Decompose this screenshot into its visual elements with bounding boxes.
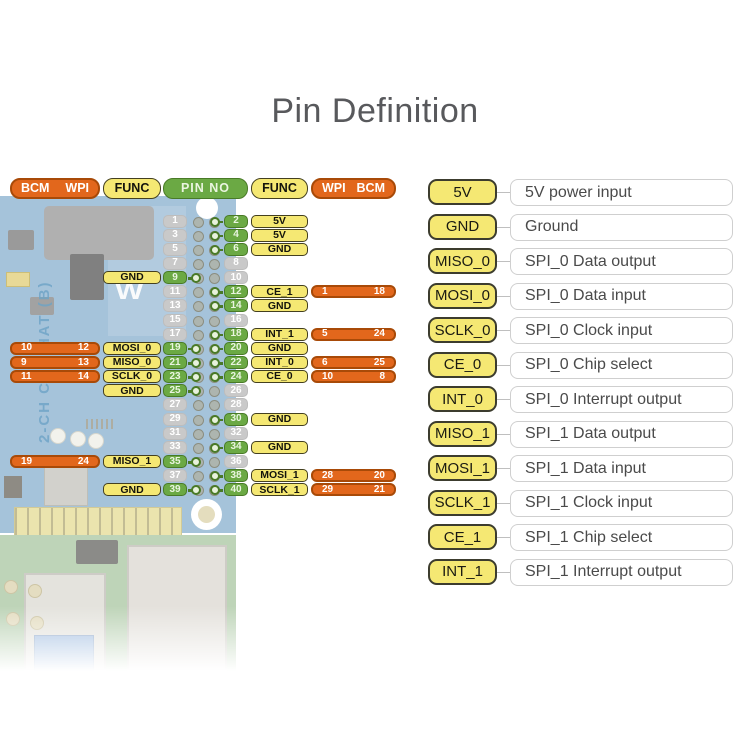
pin-number-box: 7 bbox=[163, 257, 187, 270]
header-pin-no: PIN NO bbox=[163, 178, 248, 199]
pin-number-box: 37 bbox=[163, 469, 187, 482]
legend-pin-pill: SCLK_0 bbox=[428, 317, 497, 343]
pin-number: 5 bbox=[172, 244, 178, 254]
pin-number-box: 11 bbox=[163, 285, 187, 298]
header-pin-dot bbox=[193, 415, 204, 426]
header-pin-dot bbox=[193, 471, 204, 482]
pin-number-box: 34 bbox=[224, 441, 248, 454]
header-wpi-right-label: WPI bbox=[322, 182, 346, 195]
func-text: GND bbox=[120, 485, 143, 496]
pin-connector-dot bbox=[210, 344, 220, 354]
header-bcm-left-label: BCM bbox=[21, 182, 49, 195]
legend-connector-line bbox=[497, 468, 510, 469]
header-pin-dot bbox=[193, 301, 204, 312]
wpi-value: 5 bbox=[322, 329, 328, 339]
legend-connector-line bbox=[497, 261, 510, 262]
pin-number-box: 35 bbox=[163, 455, 187, 468]
pin-number: 34 bbox=[230, 442, 241, 452]
pin-number: 18 bbox=[230, 329, 241, 339]
pin-number: 2 bbox=[233, 216, 239, 226]
func-label-right: GND bbox=[251, 413, 308, 426]
legend-desc-text: SPI_1 Data input bbox=[525, 460, 646, 478]
header-pin-dot bbox=[193, 245, 204, 256]
legend-desc-box: SPI_0 Data input bbox=[510, 283, 733, 310]
wpi-bcm-right-values: 2921 bbox=[311, 483, 396, 496]
pin-number: 4 bbox=[233, 230, 239, 240]
pin-number-box: 17 bbox=[163, 328, 187, 341]
header-pin-dot bbox=[193, 400, 204, 411]
pin-number-box: 6 bbox=[224, 243, 248, 256]
pin-number: 36 bbox=[230, 457, 241, 467]
legend-desc-text: SPI_1 Clock input bbox=[525, 494, 652, 512]
bcm-wpi-left-values: 1012 bbox=[10, 342, 100, 355]
pin-connector-dot bbox=[210, 415, 220, 425]
func-label-left: MISO_0 bbox=[103, 356, 161, 369]
func-text: GND bbox=[268, 414, 291, 425]
wpi-bcm-right-values: 625 bbox=[311, 356, 396, 369]
header-wpi-bcm-right: WPI BCM bbox=[311, 178, 396, 199]
func-label-right: MOSI_1 bbox=[251, 469, 308, 482]
legend-pin-pill: CE_0 bbox=[428, 352, 497, 378]
pin-number-box: 38 bbox=[224, 469, 248, 482]
pin-number-box: 9 bbox=[163, 271, 187, 284]
func-text: MOSI_0 bbox=[113, 343, 152, 354]
func-text: SCLK_1 bbox=[259, 485, 299, 496]
legend-desc-box: SPI_1 Clock input bbox=[510, 490, 733, 517]
func-label-right: CE_0 bbox=[251, 370, 308, 383]
legend-pin-pill: CE_1 bbox=[428, 524, 497, 550]
bcm-value: 20 bbox=[374, 471, 385, 481]
pin-number: 19 bbox=[169, 343, 180, 353]
pin-number: 1 bbox=[172, 216, 178, 226]
wpi-bcm-right-values: 2820 bbox=[311, 469, 396, 482]
pin-number-box: 30 bbox=[224, 413, 248, 426]
pin-number-box: 1 bbox=[163, 215, 187, 228]
pin-number: 10 bbox=[230, 273, 241, 283]
legend-desc-box: SPI_1 Interrupt output bbox=[510, 559, 733, 586]
header-pin-dot bbox=[193, 429, 204, 440]
func-label-right: 5V bbox=[251, 215, 308, 228]
bcm-value: 11 bbox=[21, 372, 32, 382]
func-label-right: SCLK_1 bbox=[251, 483, 308, 496]
legend-pin-name: SCLK_1 bbox=[435, 494, 491, 511]
legend-pin-name: INT_1 bbox=[442, 563, 483, 580]
pin-connector-dot bbox=[210, 330, 220, 340]
pin-number: 33 bbox=[169, 442, 180, 452]
pin-number: 25 bbox=[169, 386, 180, 396]
header-bcm-wpi-left: BCM WPI bbox=[10, 178, 100, 199]
pin-connector-dot bbox=[210, 443, 220, 453]
legend-pin-pill: MISO_0 bbox=[428, 248, 497, 274]
pin-number: 31 bbox=[169, 428, 180, 438]
pin-number-box: 8 bbox=[224, 257, 248, 270]
header-pin-dot bbox=[193, 287, 204, 298]
pin-number-box: 14 bbox=[224, 299, 248, 312]
bcm-value: 18 bbox=[374, 287, 385, 297]
pin-number-box: 20 bbox=[224, 342, 248, 355]
legend-connector-line bbox=[497, 365, 510, 366]
func-label-right: GND bbox=[251, 441, 308, 454]
func-text: GND bbox=[120, 272, 143, 283]
header-pin-dot bbox=[209, 386, 220, 397]
header-pin-dot bbox=[193, 217, 204, 228]
pin-number-box: 26 bbox=[224, 384, 248, 397]
func-text: 5V bbox=[273, 216, 286, 227]
legend-pin-name: CE_1 bbox=[444, 529, 482, 546]
pin-number-box: 29 bbox=[163, 413, 187, 426]
pin-number-box: 18 bbox=[224, 328, 248, 341]
header-pin-dot bbox=[209, 457, 220, 468]
legend-pin-name: 5V bbox=[453, 184, 471, 201]
legend-pin-pill: MOSI_1 bbox=[428, 455, 497, 481]
func-text: GND bbox=[120, 386, 143, 397]
pin-number-box: 28 bbox=[224, 398, 248, 411]
pin-number: 26 bbox=[230, 386, 241, 396]
legend-desc-box: SPI_0 Data output bbox=[510, 248, 733, 275]
legend-desc-box: SPI_1 Chip select bbox=[510, 524, 733, 551]
pin-number: 8 bbox=[233, 258, 239, 268]
func-text: GND bbox=[268, 343, 291, 354]
wpi-bcm-right-values: 118 bbox=[311, 285, 396, 298]
func-text: MISO_0 bbox=[113, 357, 152, 368]
legend-connector-line bbox=[497, 537, 510, 538]
pin-number: 6 bbox=[233, 244, 239, 254]
legend-pin-name: INT_0 bbox=[442, 391, 483, 408]
func-text: MISO_1 bbox=[113, 456, 152, 467]
func-text: SCLK_0 bbox=[112, 371, 152, 382]
pin-number-box: 2 bbox=[224, 215, 248, 228]
wpi-value: 10 bbox=[322, 372, 333, 382]
func-label-right: 5V bbox=[251, 229, 308, 242]
func-label-left: SCLK_0 bbox=[103, 370, 161, 383]
func-label-left: MISO_1 bbox=[103, 455, 161, 468]
pin-number-box: 32 bbox=[224, 427, 248, 440]
header-pin-dot bbox=[209, 259, 220, 270]
header-pin-dot bbox=[209, 273, 220, 284]
legend-desc-box: SPI_0 Interrupt output bbox=[510, 386, 733, 413]
header-pin-dot bbox=[193, 316, 204, 327]
pin-number-box: 27 bbox=[163, 398, 187, 411]
bcm-value: 21 bbox=[374, 485, 385, 495]
pin-number-box: 31 bbox=[163, 427, 187, 440]
pin-number-box: 5 bbox=[163, 243, 187, 256]
pin-number-box: 25 bbox=[163, 384, 187, 397]
header-pin-dot bbox=[209, 429, 220, 440]
pin-connector-dot bbox=[210, 358, 220, 368]
header-pin-dot bbox=[209, 316, 220, 327]
wpi-bcm-right-values: 108 bbox=[311, 370, 396, 383]
pin-connector-dot bbox=[191, 457, 201, 467]
pin-number: 40 bbox=[230, 485, 241, 495]
func-label-left: GND bbox=[103, 384, 161, 397]
func-label-right: CE_1 bbox=[251, 285, 308, 298]
pin-number: 11 bbox=[170, 287, 181, 297]
wpi-bcm-right-values: 524 bbox=[311, 328, 396, 341]
pin-number: 32 bbox=[230, 428, 241, 438]
header-func-right: FUNC bbox=[251, 178, 308, 199]
pin-number-box: 12 bbox=[224, 285, 248, 298]
bcm-value: 25 bbox=[374, 358, 385, 368]
pin-connector-dot bbox=[191, 358, 201, 368]
legend-desc-text: SPI_0 Data input bbox=[525, 287, 646, 305]
pin-number: 12 bbox=[230, 287, 241, 297]
pin-number: 37 bbox=[169, 471, 180, 481]
bcm-value: 9 bbox=[21, 358, 27, 368]
photo-bottom-fade bbox=[0, 606, 240, 678]
legend-desc-text: SPI_0 Interrupt output bbox=[525, 391, 682, 409]
pin-number-box: 15 bbox=[163, 314, 187, 327]
pin-number-box: 36 bbox=[224, 455, 248, 468]
legend-desc-text: SPI_0 Clock input bbox=[525, 322, 652, 340]
func-label-right: GND bbox=[251, 342, 308, 355]
pin-number-box: 39 bbox=[163, 483, 187, 496]
wpi-value: 13 bbox=[78, 358, 89, 368]
legend-desc-text: SPI_0 Chip select bbox=[525, 356, 652, 374]
legend-pin-name: MISO_1 bbox=[435, 425, 490, 442]
pin-number-box: 4 bbox=[224, 229, 248, 242]
bcm-wpi-left-values: 1924 bbox=[10, 455, 100, 468]
pin-number-box: 16 bbox=[224, 314, 248, 327]
header-pin-dot bbox=[193, 330, 204, 341]
legend-desc-text: SPI_1 Data output bbox=[525, 425, 656, 443]
legend-pin-pill: INT_1 bbox=[428, 559, 497, 585]
func-text: INT_1 bbox=[265, 329, 294, 340]
pin-number-box: 33 bbox=[163, 441, 187, 454]
legend-pin-name: MISO_0 bbox=[435, 253, 490, 270]
pin-connector-dot bbox=[210, 245, 220, 255]
func-label-right: INT_0 bbox=[251, 356, 308, 369]
pin-number: 3 bbox=[172, 230, 178, 240]
pin-number: 38 bbox=[230, 471, 241, 481]
pin-number: 15 bbox=[169, 315, 180, 325]
pin-number-box: 10 bbox=[224, 271, 248, 284]
wpi-value: 1 bbox=[322, 287, 328, 297]
pin-connector-dot bbox=[210, 231, 220, 241]
pin-number-box: 3 bbox=[163, 229, 187, 242]
wpi-value: 29 bbox=[322, 485, 333, 495]
pin-number: 21 bbox=[169, 358, 180, 368]
legend-connector-line bbox=[497, 572, 510, 573]
pin-number: 28 bbox=[230, 400, 241, 410]
legend-pin-pill: MOSI_0 bbox=[428, 283, 497, 309]
legend-pin-pill: MISO_1 bbox=[428, 421, 497, 447]
func-text: GND bbox=[268, 244, 291, 255]
header-pin-dot bbox=[209, 400, 220, 411]
pin-number: 13 bbox=[169, 301, 180, 311]
header-pin-dot bbox=[193, 443, 204, 454]
pin-number-box: 21 bbox=[163, 356, 187, 369]
header-pin-dot bbox=[193, 259, 204, 270]
page-title: Pin Definition bbox=[0, 92, 750, 131]
bcm-value: 8 bbox=[379, 372, 385, 382]
func-text: MOSI_1 bbox=[260, 470, 299, 481]
pin-number-box: 13 bbox=[163, 299, 187, 312]
wpi-value: 6 bbox=[322, 358, 328, 368]
func-text: CE_0 bbox=[266, 371, 292, 382]
legend-desc-box: SPI_0 Clock input bbox=[510, 317, 733, 344]
bcm-value: 24 bbox=[374, 329, 385, 339]
pin-number: 20 bbox=[230, 343, 241, 353]
legend-connector-line bbox=[497, 227, 510, 228]
header-wpi-left-label: WPI bbox=[65, 182, 89, 195]
pin-number: 7 bbox=[172, 258, 178, 268]
pin-number: 39 bbox=[169, 485, 180, 495]
bcm-value: 10 bbox=[21, 343, 32, 353]
legend-desc-box: Ground bbox=[510, 214, 733, 241]
func-label-left: GND bbox=[103, 483, 161, 496]
func-text: INT_0 bbox=[265, 357, 294, 368]
legend-pin-name: GND bbox=[446, 218, 479, 235]
pin-connector-dot bbox=[210, 217, 220, 227]
pin-number: 9 bbox=[172, 273, 178, 283]
legend-pin-name: MOSI_1 bbox=[435, 460, 490, 477]
func-label-left: GND bbox=[103, 271, 161, 284]
func-text: GND bbox=[268, 301, 291, 312]
pin-number: 16 bbox=[230, 315, 241, 325]
legend-desc-text: SPI_1 Chip select bbox=[525, 529, 652, 547]
legend-connector-line bbox=[497, 192, 510, 193]
legend-desc-box: SPI_1 Data output bbox=[510, 421, 733, 448]
pin-number: 14 bbox=[230, 301, 241, 311]
pin-number: 30 bbox=[230, 414, 241, 424]
func-text: CE_1 bbox=[266, 287, 292, 298]
legend-pin-pill: INT_0 bbox=[428, 386, 497, 412]
legend-pin-pill: GND bbox=[428, 214, 497, 240]
legend-desc-text: SPI_1 Interrupt output bbox=[525, 563, 682, 581]
pin-number-box: 24 bbox=[224, 370, 248, 383]
legend-pin-pill: 5V bbox=[428, 179, 497, 205]
pin-number-box: 40 bbox=[224, 483, 248, 496]
photo-wash-overlay bbox=[0, 196, 240, 676]
header-bcm-right-label: BCM bbox=[357, 182, 385, 195]
wpi-value: 24 bbox=[78, 457, 89, 467]
pin-definition-diagram: Pin Definition 2-CH CAN HAT (B) W bbox=[0, 0, 750, 750]
legend-connector-line bbox=[497, 399, 510, 400]
func-text: 5V bbox=[273, 230, 286, 241]
func-text: GND bbox=[268, 442, 291, 453]
pin-number-box: 22 bbox=[224, 356, 248, 369]
wpi-value: 14 bbox=[78, 372, 89, 382]
pin-number-box: 23 bbox=[163, 370, 187, 383]
legend-pin-name: MOSI_0 bbox=[435, 287, 490, 304]
bcm-wpi-left-values: 913 bbox=[10, 356, 100, 369]
func-label-left: MOSI_0 bbox=[103, 342, 161, 355]
pin-number: 29 bbox=[169, 414, 180, 424]
pin-connector-dot bbox=[191, 344, 201, 354]
pin-number: 22 bbox=[230, 358, 241, 368]
legend-desc-text: SPI_0 Data output bbox=[525, 253, 656, 271]
func-label-right: GND bbox=[251, 299, 308, 312]
legend-desc-text: 5V power input bbox=[525, 184, 632, 202]
header-func-left: FUNC bbox=[103, 178, 161, 199]
pin-number: 23 bbox=[169, 372, 180, 382]
legend-connector-line bbox=[497, 434, 510, 435]
legend-connector-line bbox=[497, 296, 510, 297]
wpi-value: 12 bbox=[78, 343, 89, 353]
pin-number: 35 bbox=[169, 457, 180, 467]
func-label-right: GND bbox=[251, 243, 308, 256]
legend-desc-box: SPI_0 Chip select bbox=[510, 352, 733, 379]
pin-number: 27 bbox=[169, 400, 180, 410]
legend-connector-line bbox=[497, 503, 510, 504]
wpi-value: 28 bbox=[322, 471, 333, 481]
legend-connector-line bbox=[497, 330, 510, 331]
header-pin-dot bbox=[193, 231, 204, 242]
bcm-value: 19 bbox=[21, 457, 32, 467]
legend-desc-box: SPI_1 Data input bbox=[510, 455, 733, 482]
pin-number-box: 19 bbox=[163, 342, 187, 355]
func-label-right: INT_1 bbox=[251, 328, 308, 341]
legend-pin-pill: SCLK_1 bbox=[428, 490, 497, 516]
legend-pin-name: CE_0 bbox=[444, 356, 482, 373]
pin-number: 17 bbox=[169, 329, 180, 339]
legend-desc-text: Ground bbox=[525, 218, 578, 236]
legend-pin-name: SCLK_0 bbox=[435, 322, 491, 339]
legend-desc-box: 5V power input bbox=[510, 179, 733, 206]
pin-number: 24 bbox=[230, 372, 241, 382]
bcm-wpi-left-values: 1114 bbox=[10, 370, 100, 383]
